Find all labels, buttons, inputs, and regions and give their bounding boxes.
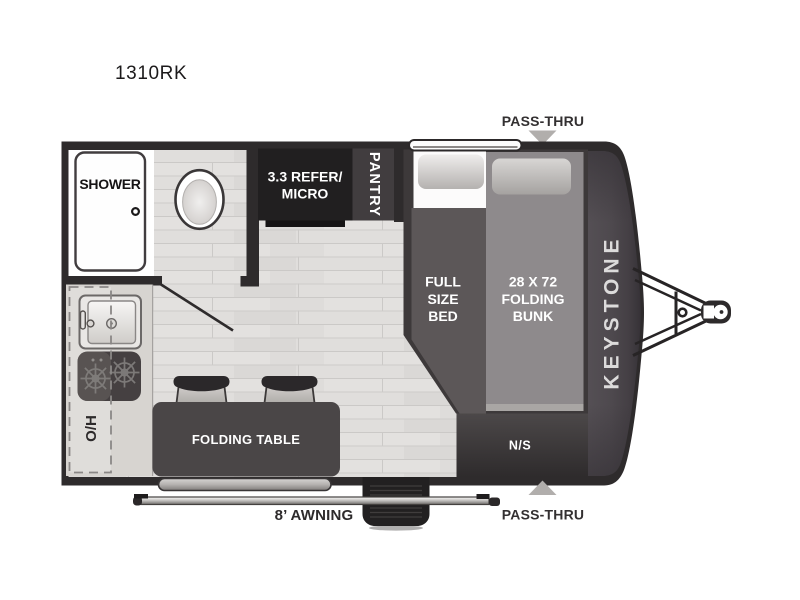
svg-text:PANTRY: PANTRY [366, 152, 382, 217]
svg-text:KEYSTONE: KEYSTONE [601, 234, 624, 389]
svg-text:FOLDING: FOLDING [502, 291, 565, 307]
svg-text:SHOWER: SHOWER [79, 176, 140, 192]
svg-text:SIZE: SIZE [427, 291, 458, 307]
svg-text:MICRO: MICRO [282, 186, 329, 202]
svg-text:PASS-THRU: PASS-THRU [502, 507, 584, 523]
svg-text:BED: BED [428, 308, 458, 324]
svg-text:8’ AWNING: 8’ AWNING [275, 507, 354, 524]
svg-text:28 X 72: 28 X 72 [509, 274, 557, 290]
svg-text:N/S: N/S [509, 439, 531, 453]
svg-text:O/H: O/H [83, 415, 100, 442]
svg-text:FULL: FULL [425, 274, 461, 290]
svg-text:1310RK: 1310RK [115, 63, 187, 84]
svg-text:FOLDING TABLE: FOLDING TABLE [192, 432, 300, 447]
svg-text:PASS-THRU: PASS-THRU [502, 113, 584, 129]
svg-text:BUNK: BUNK [513, 308, 553, 324]
svg-text:3.3 REFER/: 3.3 REFER/ [268, 169, 343, 185]
